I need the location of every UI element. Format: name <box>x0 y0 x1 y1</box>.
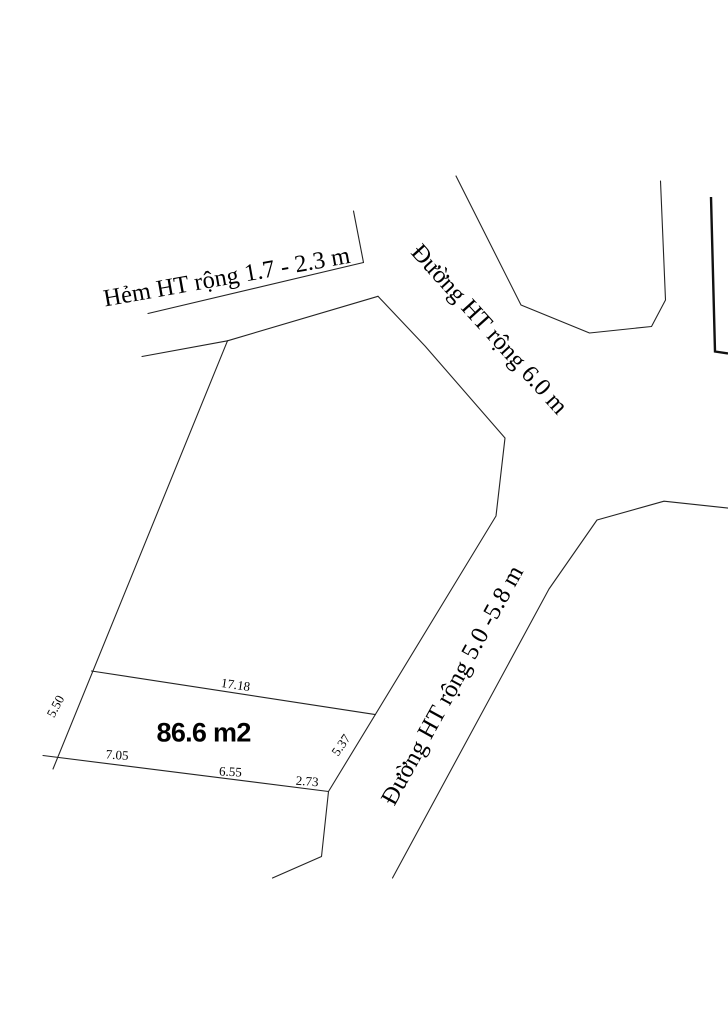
svg-text:Hẻm HT rộng 1.7 - 2.3 m: Hẻm HT rộng 1.7 - 2.3 m <box>101 242 352 312</box>
svg-text:6.55: 6.55 <box>219 763 243 779</box>
svg-text:Đường HT rộng 5.0 -5.8 m: Đường HT rộng 5.0 -5.8 m <box>376 561 529 810</box>
svg-text:7.05: 7.05 <box>105 746 129 763</box>
svg-text:86.6 m2: 86.6 m2 <box>157 718 251 748</box>
svg-text:Đường HT rộng 6.0 m: Đường HT rộng 6.0 m <box>406 239 574 420</box>
svg-text:5.50: 5.50 <box>43 693 67 720</box>
svg-text:5.37: 5.37 <box>328 731 354 759</box>
svg-text:2.73: 2.73 <box>295 773 319 790</box>
